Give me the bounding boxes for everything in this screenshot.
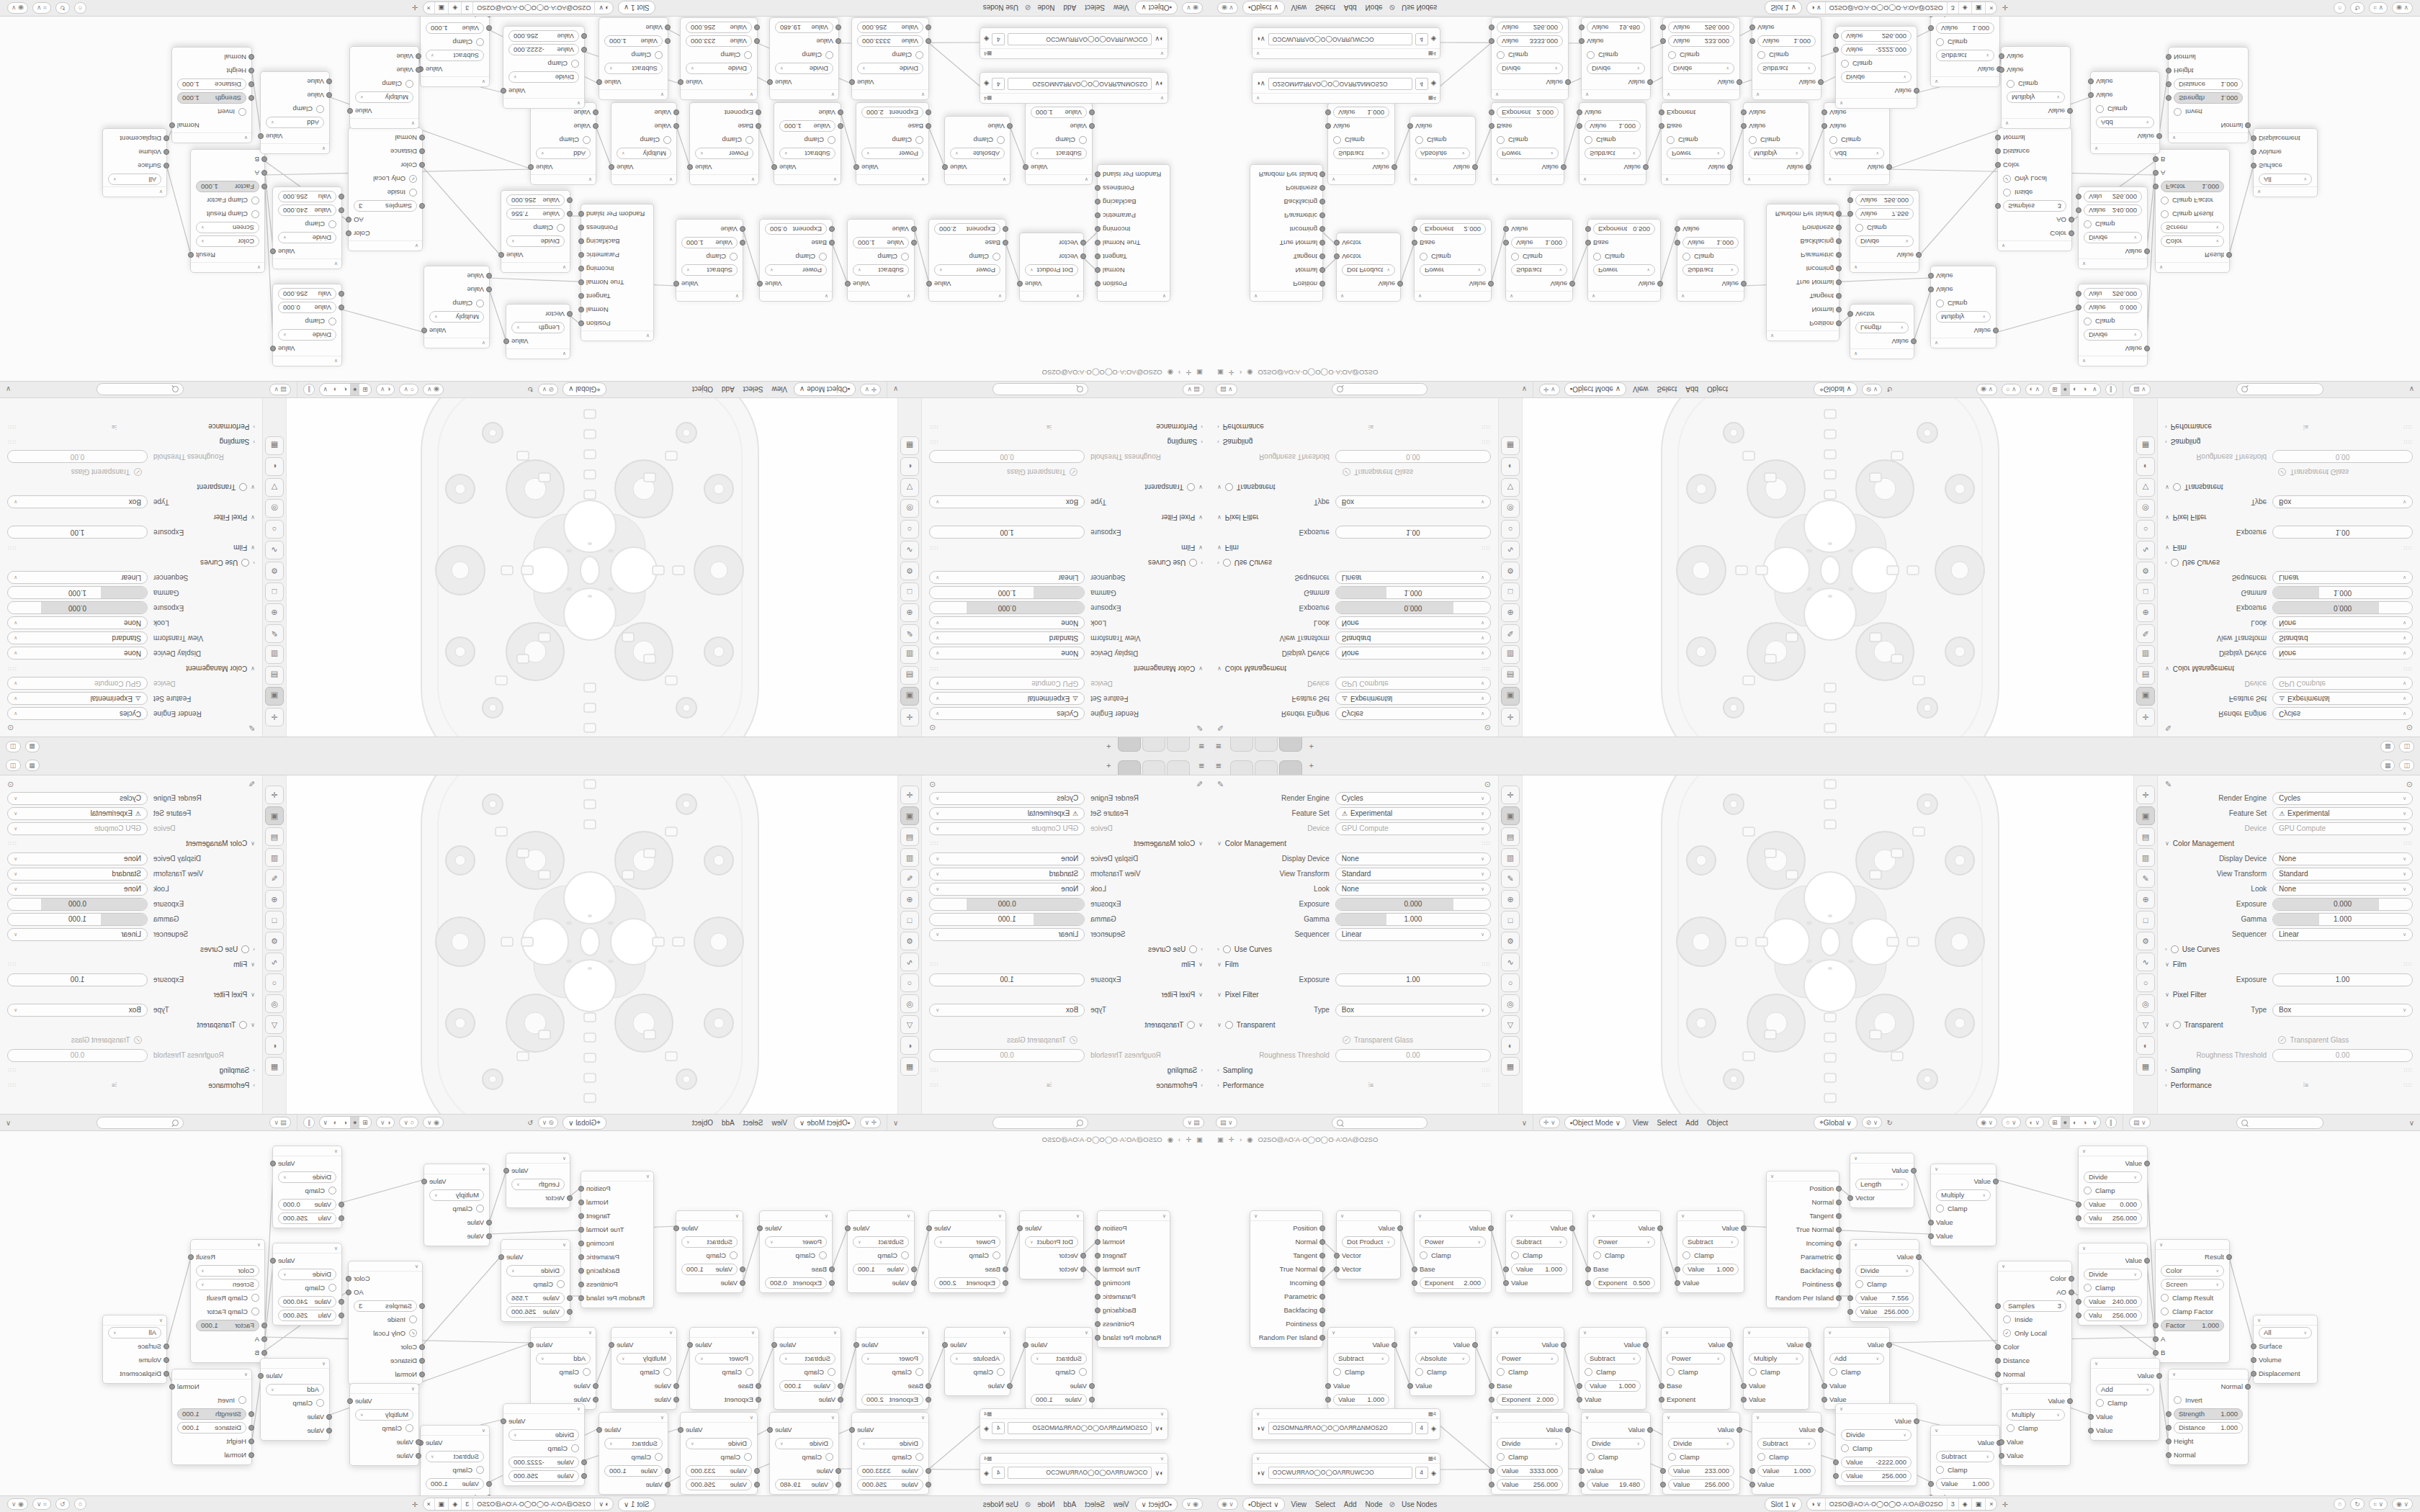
properties-tab-icon[interactable]: ◎ — [2136, 994, 2155, 1013]
collapse-icon[interactable]: ∨ — [159, 189, 163, 195]
shader-node[interactable]: ∨ValueSubtract∨ClampValue1.000Value — [1579, 1327, 1646, 1410]
prop-slider[interactable]: 0.000 — [7, 602, 148, 615]
operation-dropdown[interactable]: Divide∨ — [775, 1438, 833, 1449]
input-socket[interactable] — [838, 123, 843, 129]
collapse-icon[interactable]: › — [2165, 1082, 2167, 1089]
collapse-icon[interactable]: ∨ — [825, 294, 828, 300]
shield-icon[interactable]: ◈ — [1431, 81, 1436, 89]
prop-slider[interactable]: 1.000 — [1335, 587, 1491, 600]
prop-number-field[interactable]: 0.00 — [2272, 451, 2413, 464]
unlink-icon[interactable]: × — [423, 1498, 434, 1510]
shader-node[interactable]: ∨ValuePower∨ClampBaseExponent2.000 — [856, 102, 929, 185]
checkbox-icon[interactable] — [1585, 1368, 1592, 1376]
shader-node[interactable]: ∨ValueDivide∨ClampValue3333.000Value256.… — [851, 17, 929, 100]
value-field[interactable]: Value233.000 — [1668, 1465, 1734, 1477]
checkbox-icon[interactable] — [663, 1368, 671, 1376]
properties-tab-icon[interactable]: □ — [2136, 582, 2155, 601]
mode-dropdown[interactable]: ▪ Object Mode ∨ — [1564, 1116, 1626, 1130]
output-socket[interactable] — [1736, 1427, 1742, 1433]
search-input[interactable] — [2236, 384, 2323, 396]
properties-tab-icon[interactable]: ▽ — [2136, 1015, 2155, 1034]
output-socket[interactable] — [1391, 1342, 1397, 1348]
node-header[interactable]: ∨ — [1337, 1211, 1400, 1221]
menu-object[interactable]: Object — [690, 1119, 715, 1127]
output-socket[interactable] — [1319, 253, 1325, 259]
section-header-color-management[interactable]: ∨Color Management∷∷ — [2158, 836, 2420, 851]
operation-dropdown[interactable]: Color∨ — [2161, 1265, 2224, 1277]
editor-type-icon[interactable]: ◉ ∨ — [1217, 2, 1238, 14]
search-input[interactable] — [97, 384, 184, 396]
prop-dropdown[interactable]: None∨ — [929, 883, 1085, 896]
checkbox-icon[interactable] — [744, 51, 752, 59]
node-header[interactable]: ∨▦4 — [980, 1454, 1168, 1464]
shader-node[interactable]: ∨▦4◑∨O2SOMNΔЯRΛO◯O◯OΛЯRΔNMOS2O4◈ — [1252, 1408, 1440, 1440]
output-socket[interactable] — [1319, 199, 1325, 204]
value-field[interactable]: Exponent0.500 — [765, 1277, 827, 1289]
node-header[interactable]: ∨▦4 — [1252, 1454, 1440, 1464]
node-header[interactable]: ∨ — [261, 143, 329, 153]
input-socket[interactable] — [1325, 1397, 1331, 1403]
output-socket[interactable] — [1319, 1294, 1325, 1300]
node-header[interactable]: ∨ — [1328, 174, 1394, 184]
shader-node[interactable]: ∨ValueDivide∨ClampValue0.000Valu256.000 — [272, 1146, 342, 1228]
input-socket[interactable] — [486, 273, 492, 279]
proportional-edit-icon[interactable]: ↻ — [527, 386, 533, 394]
output-socket[interactable] — [1565, 79, 1571, 85]
checkbox-icon[interactable] — [1936, 1466, 1944, 1474]
input-socket[interactable] — [1999, 53, 2004, 59]
input-socket[interactable] — [163, 135, 169, 141]
section-header-performance[interactable]: ›Performance⫶≡∷∷ — [922, 419, 1210, 434]
collapse-icon[interactable]: ∨ — [1256, 96, 1260, 102]
value-field[interactable]: Value1.000 — [853, 238, 909, 249]
shield-icon[interactable]: ◈ — [984, 36, 989, 44]
output-socket[interactable] — [853, 1342, 859, 1348]
properties-tab-icon[interactable]: ○ — [265, 973, 284, 992]
input-socket[interactable] — [1489, 1468, 1494, 1474]
proportional-edit-icon[interactable]: ↻ — [527, 1119, 533, 1127]
operation-dropdown[interactable]: Subtract∨ — [681, 1236, 738, 1248]
shader-node[interactable]: ∨ValueDivide∨ClampValue3333.000Value256.… — [851, 1412, 929, 1495]
input-socket[interactable] — [665, 38, 671, 44]
output-socket[interactable] — [2069, 1290, 2074, 1295]
checkbox-icon[interactable] — [476, 38, 484, 46]
checkbox-icon[interactable] — [819, 253, 827, 261]
checkbox-icon[interactable] — [745, 136, 753, 144]
value-field[interactable]: Value7.556 — [1855, 1292, 1914, 1304]
shader-node[interactable]: ∨ValueDivide∨ClampValue0.000Valu256.000 — [2078, 284, 2148, 366]
shading-mode-switch[interactable]: ⊞●◐◑∨ — [2048, 1116, 2100, 1129]
pin-icon[interactable]: ⊙ — [7, 780, 14, 789]
output-socket[interactable] — [1836, 238, 1842, 244]
pin-icon[interactable]: ✛ — [412, 1500, 418, 1508]
prop-dropdown[interactable]: Linear∨ — [7, 572, 148, 585]
input-socket[interactable] — [593, 123, 599, 129]
input-socket[interactable] — [419, 162, 425, 168]
output-socket[interactable] — [1836, 307, 1842, 312]
node-header[interactable]: ∨▦4 — [980, 93, 1168, 103]
input-socket[interactable] — [419, 1344, 425, 1350]
checkbox-icon[interactable] — [1587, 1453, 1595, 1461]
output-socket[interactable] — [528, 1342, 534, 1348]
properties-tab-icon[interactable]: ⚙ — [265, 562, 284, 580]
operation-dropdown[interactable]: Divide∨ — [1855, 236, 1914, 248]
collapse-icon[interactable]: ∨ — [669, 177, 673, 183]
input-socket[interactable] — [486, 25, 492, 31]
shader-node[interactable]: ∨ValueSubtract∨ClampValueValue1.000 — [1025, 1327, 1093, 1410]
collapse-icon[interactable]: ∨ — [833, 177, 837, 183]
section-header-color-management[interactable]: ∨Color Management∷∷ — [0, 661, 262, 676]
add-workspace-button[interactable]: + — [1103, 761, 1113, 770]
section-header-use-curves[interactable]: ›Use Curves — [0, 555, 262, 570]
properties-tab-icon[interactable]: ⊕ — [265, 890, 284, 909]
input-socket[interactable] — [2166, 68, 2172, 73]
value-field[interactable]: Exponent0.500 — [1593, 224, 1655, 235]
prop-dropdown[interactable]: Linear∨ — [2272, 572, 2413, 585]
operation-dropdown[interactable]: Divide∨ — [506, 1265, 565, 1277]
prop-dropdown[interactable]: Box∨ — [2272, 1004, 2413, 1017]
operation-dropdown[interactable]: Length∨ — [511, 323, 565, 334]
expand-icon[interactable]: ∨ — [1217, 1022, 1222, 1028]
editor-type-icon[interactable]: ▤ ∨ — [1183, 384, 1204, 395]
snap-circle-icon[interactable]: ○ — [74, 1498, 86, 1510]
checkbox-icon[interactable] — [241, 559, 249, 567]
shader-context-dropdown[interactable]: ▪ Object ∨ — [1242, 1, 1285, 15]
prop-dropdown[interactable]: Standard∨ — [929, 868, 1085, 881]
value-field[interactable]: Value256.000 — [1497, 22, 1563, 34]
collapse-icon[interactable]: ∨ — [1935, 1428, 1938, 1434]
input-socket[interactable] — [339, 305, 344, 310]
input-socket[interactable] — [593, 1383, 599, 1389]
group-user-count[interactable]: 4 — [992, 1422, 1005, 1434]
output-socket[interactable] — [503, 338, 509, 344]
input-socket[interactable] — [1003, 226, 1008, 232]
value-field[interactable]: Value1.000 — [1936, 1478, 1994, 1490]
search-input[interactable] — [992, 1117, 1088, 1129]
value-field[interactable]: Exponent0.500 — [1593, 1277, 1655, 1289]
shader-node[interactable]: ∨ValueDivide∨ClampValue240.000Valu256.00… — [2078, 1243, 2148, 1326]
operation-dropdown[interactable]: Subtract∨ — [1757, 63, 1816, 75]
collapse-icon[interactable]: ∨ — [563, 1242, 566, 1248]
prop-dropdown[interactable]: None∨ — [2272, 647, 2413, 660]
collapse-icon[interactable]: ∨ — [1665, 1330, 1669, 1336]
value-field[interactable]: Strength1.000 — [177, 1408, 246, 1420]
properties-tab-icon[interactable]: ◐ — [2136, 1036, 2155, 1055]
workspace-tab[interactable] — [1279, 760, 1302, 775]
node-header[interactable]: ∨ — [1752, 89, 1821, 99]
checkbox-icon[interactable] — [1511, 253, 1519, 261]
node-header[interactable]: ∨ — [1662, 174, 1730, 184]
shader-node[interactable]: ∨ValueSubtract∨ClampValue1.000Value — [1677, 1210, 1744, 1293]
prop-dropdown[interactable]: Linear∨ — [2272, 928, 2413, 941]
node-header[interactable]: ∨ — [531, 1328, 596, 1338]
checkbox-icon[interactable] — [2161, 1294, 2169, 1302]
snap-refresh-icon[interactable]: ↻ — [55, 2, 70, 14]
output-socket[interactable] — [498, 252, 504, 258]
slot-dropdown[interactable]: Slot 1 ∨ — [618, 1, 655, 15]
input-socket[interactable] — [567, 311, 573, 317]
shader-node[interactable]: ∨ValueSubtract∨ClampValue1.000Value — [420, 1425, 490, 1498]
operation-dropdown[interactable]: Subtract∨ — [426, 50, 484, 62]
prop-dropdown[interactable]: GPU Compute∨ — [7, 822, 148, 835]
prop-dropdown[interactable]: ⚠Experimental∨ — [7, 807, 148, 820]
collapse-icon[interactable]: › — [1201, 438, 1203, 445]
input-socket[interactable] — [1928, 1220, 1934, 1225]
shader-node[interactable]: ∨ValueSubtract∨ClampValue1.000Value — [1505, 219, 1573, 302]
shader-node[interactable]: ∨ValueLength∨Vector — [1850, 304, 1914, 359]
menu-select[interactable]: Select — [1313, 4, 1337, 12]
properties-tab-icon[interactable]: ⊕ — [2136, 890, 2155, 909]
properties-tab-icon[interactable]: ⊕ — [1501, 603, 1520, 622]
overlay-dropdown[interactable]: ◉ ∨ — [2392, 1498, 2413, 1510]
section-header-film[interactable]: ∨Film∷∷ — [922, 540, 1210, 555]
shader-node[interactable]: ∨ValueAdd∨ClampValueValue — [1824, 102, 1890, 185]
shader-node[interactable]: ∨PositionNormalTangentTrue NormalIncomin… — [1766, 204, 1839, 341]
properties-tab-icon[interactable]: ✎ — [1501, 624, 1520, 643]
value-field[interactable]: Value1.000 — [1585, 121, 1641, 132]
output-socket[interactable] — [1095, 240, 1101, 246]
operation-dropdown[interactable]: Divide∨ — [2084, 1269, 2142, 1280]
collapse-icon[interactable]: ∨ — [1003, 177, 1006, 183]
prop-number-field[interactable]: 0.00 — [2272, 1049, 2413, 1062]
output-socket[interactable] — [501, 88, 506, 94]
output-socket[interactable] — [1319, 185, 1325, 191]
input-socket[interactable] — [1675, 1266, 1680, 1272]
checkbox-icon[interactable] — [251, 197, 259, 204]
checkbox-icon[interactable] — [476, 300, 484, 307]
operation-dropdown[interactable]: Multiply∨ — [355, 1409, 413, 1421]
input-socket[interactable] — [1741, 123, 1747, 129]
workspace-tab[interactable] — [1279, 737, 1302, 752]
collapse-icon[interactable]: ∨ — [1583, 1330, 1587, 1336]
value-field[interactable]: Value1.000 — [681, 1264, 738, 1275]
output-socket[interactable] — [2144, 346, 2150, 351]
collapse-icon[interactable]: ∨ — [2257, 189, 2261, 195]
input-socket[interactable] — [339, 207, 344, 213]
collapse-icon[interactable]: ∨ — [322, 146, 326, 152]
prop-dropdown[interactable]: Cycles∨ — [1335, 792, 1491, 805]
input-socket[interactable] — [326, 1428, 332, 1434]
properties-tab-icon[interactable]: ▽ — [2136, 478, 2155, 497]
pin-icon[interactable]: ⊙ — [929, 780, 936, 789]
filter-icon[interactable]: ∨ — [893, 386, 898, 394]
value-field[interactable]: Exponent2.000 — [934, 1277, 1000, 1289]
operation-dropdown[interactable]: Absolute∨ — [950, 1353, 1005, 1364]
menu-node[interactable]: Node — [1363, 1500, 1385, 1508]
prop-dropdown[interactable]: ⚠Experimental∨ — [1335, 693, 1491, 706]
prop-dropdown[interactable]: None∨ — [7, 617, 148, 630]
prop-number-field[interactable]: 0.00 — [1335, 451, 1491, 464]
group-user-count[interactable]: 4 — [1415, 34, 1428, 46]
overlays-dropdown[interactable]: ◐ ∨ — [2025, 1117, 2045, 1128]
properties-tab-icon[interactable]: ▦ — [265, 436, 284, 455]
output-socket[interactable] — [1836, 1227, 1842, 1233]
input-socket[interactable] — [1080, 1266, 1086, 1272]
input-socket[interactable] — [1833, 1473, 1839, 1479]
collapse-icon[interactable]: ∨ — [1160, 1411, 1164, 1417]
collapse-icon[interactable]: › — [1217, 438, 1219, 445]
expand-icon[interactable]: ∨ — [2165, 544, 2169, 551]
collapse-icon[interactable]: ∨ — [334, 1246, 338, 1251]
group-name[interactable]: O2SOMNΔЯRΛO◯O◯OΛЯRΔNMOS2O — [1008, 1422, 1152, 1434]
menu-select[interactable]: Select — [1083, 4, 1107, 12]
checkbox-icon[interactable] — [1187, 483, 1195, 491]
properties-tab-icon[interactable]: ◎ — [900, 994, 919, 1013]
snap-toggle[interactable]: ⊘ ∨ — [1862, 1117, 1883, 1128]
input-socket[interactable] — [1928, 287, 1934, 292]
operation-dropdown[interactable]: Power∨ — [1593, 1236, 1655, 1248]
checkbox-icon[interactable] — [1497, 1453, 1505, 1461]
collapse-icon[interactable]: ∨ — [1854, 265, 1857, 271]
shader-node[interactable]: ∨ValuePower∨ClampBaseExponent — [1661, 102, 1731, 185]
operation-dropdown[interactable]: Subtract∨ — [1757, 1438, 1816, 1449]
collapse-icon[interactable]: ∨ — [833, 1330, 837, 1336]
pin-icon[interactable]: ✛ — [2002, 4, 2007, 12]
properties-tab-icon[interactable]: ▦ — [1501, 436, 1520, 455]
input-socket[interactable] — [1847, 1295, 1853, 1301]
collapse-icon[interactable]: ∨ — [1747, 1330, 1751, 1336]
input-socket[interactable] — [756, 1397, 761, 1403]
checkbox-icon[interactable] — [1668, 51, 1676, 59]
collapse-icon[interactable]: ∨ — [2082, 359, 2086, 364]
shader-node[interactable]: ∨ResultColor∨Screen∨Clamp ResultClamp Fa… — [2155, 1239, 2230, 1363]
node-header[interactable]: ∨ — [1492, 1413, 1568, 1423]
operation-dropdown[interactable]: Divide∨ — [686, 63, 752, 75]
operation-dropdown[interactable]: Power∨ — [695, 1353, 753, 1364]
operation-dropdown[interactable]: Color∨ — [2161, 236, 2224, 248]
node-header[interactable]: ∨ — [350, 118, 418, 128]
orientation-dropdown[interactable]: ⌖ Global ∨ — [563, 383, 606, 397]
checkbox-icon[interactable] — [1223, 559, 1231, 567]
expand-icon[interactable]: ∨ — [1217, 991, 1222, 998]
prop-dropdown[interactable]: None∨ — [1335, 883, 1491, 896]
editor-type-icon[interactable]: ◉ ∨ — [1182, 2, 1203, 14]
checkbox-icon[interactable] — [1497, 51, 1505, 59]
shader-node[interactable]: ∨ValueDivide∨ClampValue240.000Valu256.00… — [272, 186, 342, 269]
node-header[interactable]: ∨ — [690, 174, 758, 184]
input-socket[interactable] — [567, 211, 573, 217]
properties-tab-icon[interactable]: ∿ — [265, 541, 284, 559]
checkbox-icon[interactable] — [409, 1315, 417, 1323]
input-socket[interactable] — [838, 109, 843, 115]
input-socket[interactable] — [2088, 1414, 2094, 1420]
material-datablock[interactable]: ◑ ∨ O2SO@AO∶A·O◯O◯O·A∶OA@O2SO 3 ◈ ▣ × — [423, 1498, 614, 1511]
collapse-icon[interactable]: ∨ — [751, 177, 755, 183]
collapse-icon[interactable]: ∨ — [1667, 1415, 1670, 1421]
checkbox-icon[interactable] — [819, 1251, 827, 1259]
input-socket[interactable] — [339, 1215, 344, 1221]
properties-tab-icon[interactable]: ▽ — [265, 478, 284, 497]
input-socket[interactable] — [1928, 1233, 1934, 1239]
shader-node[interactable]: ∨ValuePower∨ClampBaseExponent0.500 — [1587, 219, 1661, 302]
output-socket[interactable] — [1836, 320, 1842, 326]
properties-tab-icon[interactable]: ▤ — [900, 827, 919, 846]
input-socket[interactable] — [1660, 1468, 1666, 1474]
output-socket[interactable] — [1916, 252, 1922, 258]
prop-checkbox-transparent-glass[interactable]: ✓Transparent Glass — [1210, 464, 1498, 480]
input-socket[interactable] — [2088, 92, 2094, 98]
collapse-icon[interactable]: ∨ — [1414, 1330, 1417, 1336]
prop-dropdown[interactable]: GPU Compute∨ — [1335, 678, 1491, 690]
properties-tab-icon[interactable]: ✎ — [2136, 624, 2155, 643]
value-field[interactable]: Value240.000 — [2084, 205, 2142, 217]
shader-node-editor[interactable]: ▣ ✛ › ◉ O2SO@AO∶A·O◯O◯O·A∶OA@O2SO ∨Posit… — [0, 1131, 1210, 1498]
3d-viewport[interactable] — [286, 775, 898, 1114]
prop-dropdown[interactable]: None∨ — [1335, 852, 1491, 865]
node-header[interactable]: ∨ — [2254, 1315, 2317, 1326]
checkbox-icon[interactable] — [997, 136, 1005, 144]
expand-icon[interactable]: ∨ — [1198, 544, 1203, 551]
input-socket[interactable] — [754, 1468, 760, 1474]
properties-tab-icon[interactable]: ▤ — [1501, 666, 1520, 685]
shader-node[interactable]: ∨ColorAOSamples3Inside✓Only LocalColorDi… — [1997, 1261, 2072, 1385]
prop-dropdown[interactable]: Cycles∨ — [2272, 708, 2413, 721]
collapse-icon[interactable]: ∨ — [921, 1330, 925, 1336]
prop-slider[interactable]: 0.000 — [7, 898, 148, 911]
collapse-icon[interactable]: ∨ — [1510, 1213, 1513, 1219]
node-header[interactable]: ∨ — [1752, 1413, 1821, 1423]
section-header-transparent[interactable]: ∨Transparent — [0, 1017, 262, 1032]
shader-node[interactable]: ∨ValueSubtract∨ClampValue1.000Value — [1505, 1210, 1573, 1293]
shader-node[interactable]: ∨ValueAbsolute∨ClampValue — [944, 116, 1010, 185]
input-socket[interactable] — [829, 226, 835, 232]
collapse-icon[interactable]: ∨ — [1935, 341, 1938, 346]
editor-type-icon[interactable]: ✛ ∨ — [860, 384, 881, 395]
node-header[interactable]: ∨ — [1492, 1328, 1564, 1338]
operation-dropdown[interactable]: Length∨ — [511, 1179, 565, 1190]
node-header[interactable]: ∨ — [349, 1261, 422, 1272]
checkbox-icon[interactable] — [251, 1308, 259, 1315]
operation-dropdown[interactable]: Divide∨ — [508, 1429, 579, 1441]
output-socket[interactable] — [421, 328, 427, 333]
mode-dropdown[interactable]: ▪ Object Mode ∨ — [1564, 383, 1626, 397]
value-field[interactable]: Valu256.000 — [278, 1212, 336, 1224]
input-socket[interactable] — [163, 1371, 169, 1377]
input-socket[interactable] — [1821, 1383, 1827, 1389]
node-header[interactable]: ∨ — [1250, 1211, 1322, 1221]
value-field[interactable]: Value1.000 — [779, 121, 835, 132]
expand-icon[interactable]: ∨ — [1217, 484, 1222, 490]
prop-dropdown[interactable]: Cycles∨ — [929, 708, 1085, 721]
collapse-icon[interactable]: ∨ — [411, 121, 415, 127]
prop-slider[interactable]: 0.000 — [1335, 602, 1491, 615]
output-socket[interactable] — [1095, 1239, 1101, 1245]
expand-icon[interactable]: ∨ — [1198, 665, 1203, 672]
expand-icon[interactable]: ∨ — [1198, 840, 1203, 847]
value-field[interactable]: Samples3 — [2003, 201, 2066, 212]
output-socket[interactable] — [2067, 1398, 2073, 1404]
input-socket[interactable] — [911, 1280, 917, 1286]
shader-node[interactable]: ∨ColorAOSamples3Inside✓Only LocalColorDi… — [1997, 127, 2072, 251]
input-socket[interactable] — [1821, 1397, 1827, 1403]
shader-node-editor[interactable]: ▣ ✛ › ◉ O2SO@AO∶A·O◯O◯O·A∶OA@O2SO ∨Posit… — [1210, 1131, 2420, 1498]
editor-type-icon[interactable]: ✛ ∨ — [860, 1117, 881, 1128]
value-field[interactable]: Value240.000 — [278, 1296, 336, 1308]
section-header-film[interactable]: ∨Film∷∷ — [922, 957, 1210, 972]
input-socket[interactable] — [1579, 1468, 1585, 1474]
properties-tab-icon[interactable]: ◐ — [265, 1036, 284, 1055]
properties-tab-icon[interactable]: ◎ — [1501, 994, 1520, 1013]
node-header[interactable]: ∨ — [1998, 1261, 2071, 1272]
output-socket[interactable] — [1643, 164, 1649, 170]
checkbox-icon[interactable]: ✓ — [409, 175, 417, 183]
value-field[interactable]: Valu256.000 — [278, 289, 336, 300]
output-socket[interactable] — [1836, 211, 1842, 217]
checkbox-icon[interactable] — [730, 253, 738, 261]
prop-number-field[interactable]: 1.00 — [7, 973, 148, 986]
shader-node[interactable]: ∨ValueDivide∨ClampValue240.000Valu256.00… — [272, 1243, 342, 1326]
menu-select[interactable]: Select — [741, 1119, 766, 1127]
